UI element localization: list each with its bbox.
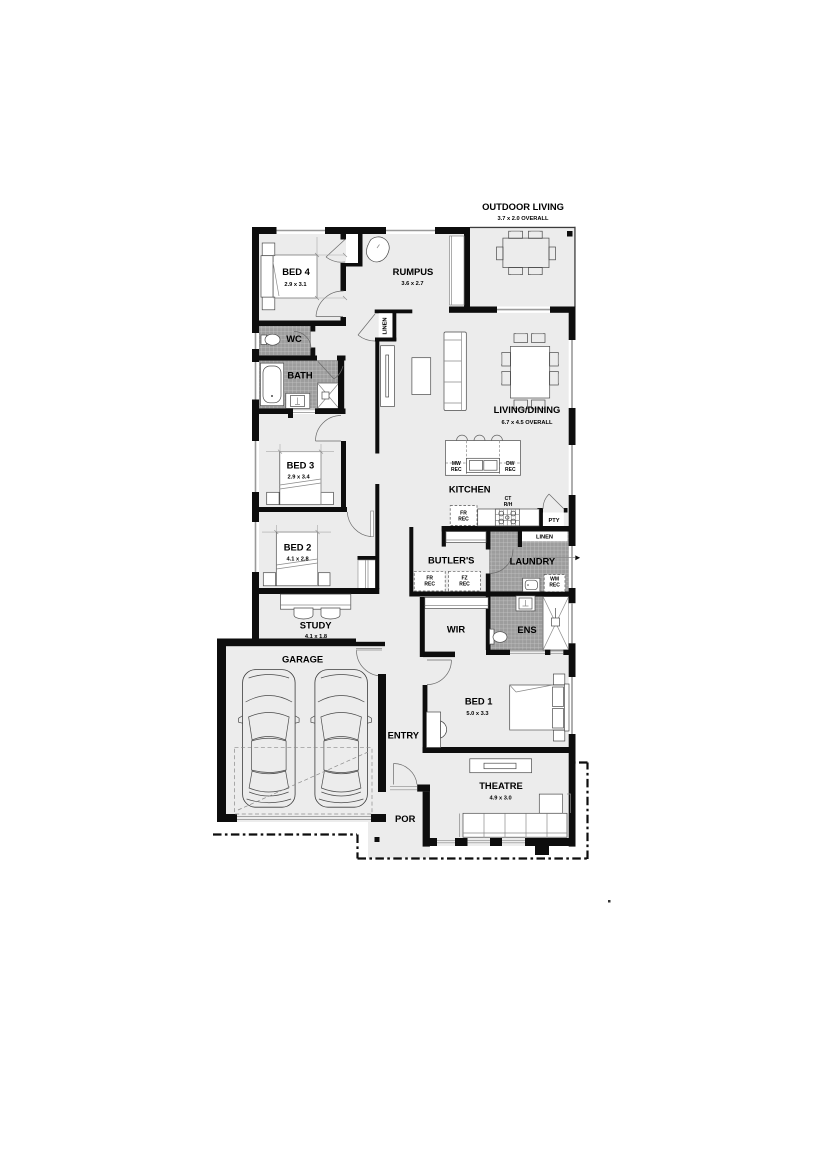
svg-text:4.1 x 2.8: 4.1 x 2.8 bbox=[287, 556, 309, 562]
svg-text:RUMPUS: RUMPUS bbox=[393, 266, 434, 277]
svg-text:REC: REC bbox=[424, 582, 435, 588]
svg-text:2.9 x 3.1: 2.9 x 3.1 bbox=[284, 282, 306, 288]
svg-text:THEATRE: THEATRE bbox=[479, 780, 523, 791]
svg-text:BED 3: BED 3 bbox=[287, 460, 315, 471]
svg-text:REC: REC bbox=[458, 517, 469, 523]
svg-text:STUDY: STUDY bbox=[300, 620, 333, 631]
svg-text:REC: REC bbox=[549, 583, 560, 589]
svg-text:REC: REC bbox=[505, 467, 516, 473]
svg-text:REC: REC bbox=[459, 582, 470, 588]
svg-text:3.7 x 2.0 OVERALL: 3.7 x 2.0 OVERALL bbox=[498, 216, 549, 222]
svg-text:4.9 x 3.0: 4.9 x 3.0 bbox=[490, 796, 512, 802]
svg-text:4.1 x 1.8: 4.1 x 1.8 bbox=[305, 634, 327, 640]
svg-text:LINEN: LINEN bbox=[536, 535, 553, 541]
svg-text:GARAGE: GARAGE bbox=[282, 654, 323, 665]
svg-text:KITCHEN: KITCHEN bbox=[449, 484, 491, 495]
svg-text:WC: WC bbox=[286, 333, 302, 344]
svg-text:BED 2: BED 2 bbox=[284, 542, 312, 553]
svg-text:6.7 x 4.5 OVERALL: 6.7 x 4.5 OVERALL bbox=[502, 420, 553, 426]
svg-text:REC: REC bbox=[451, 467, 462, 473]
svg-text:R/H: R/H bbox=[504, 502, 513, 508]
svg-text:ENTRY: ENTRY bbox=[388, 730, 420, 741]
svg-text:ENS: ENS bbox=[517, 624, 536, 635]
svg-text:WIR: WIR bbox=[447, 624, 465, 635]
svg-text:BED 4: BED 4 bbox=[282, 266, 310, 277]
svg-text:POR: POR bbox=[395, 813, 416, 824]
svg-text:BUTLER'S: BUTLER'S bbox=[428, 555, 475, 566]
svg-text:OUTDOOR LIVING: OUTDOOR LIVING bbox=[482, 201, 564, 212]
svg-text:BATH: BATH bbox=[287, 370, 313, 381]
svg-text:BED 1: BED 1 bbox=[465, 696, 493, 707]
svg-text:5.0 x 3.3: 5.0 x 3.3 bbox=[466, 711, 488, 717]
svg-text:3.6 x 2.7: 3.6 x 2.7 bbox=[401, 281, 423, 287]
svg-text:PTY: PTY bbox=[548, 518, 559, 524]
svg-text:2.9 x 3.4: 2.9 x 3.4 bbox=[288, 474, 311, 480]
svg-text:LAUNDRY: LAUNDRY bbox=[510, 556, 556, 567]
svg-text:LINEN: LINEN bbox=[382, 317, 388, 334]
svg-text:LIVING/DINING: LIVING/DINING bbox=[494, 404, 561, 415]
